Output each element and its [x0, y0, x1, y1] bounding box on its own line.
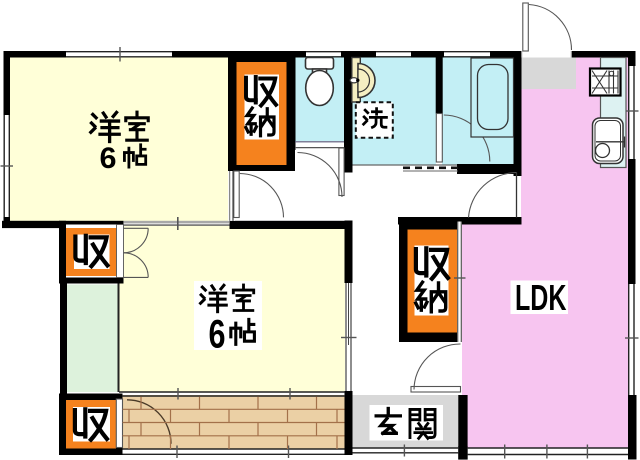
svg-text:6: 6	[100, 142, 117, 175]
svg-text:LDK: LDK	[515, 277, 567, 318]
svg-text:6: 6	[209, 313, 226, 357]
